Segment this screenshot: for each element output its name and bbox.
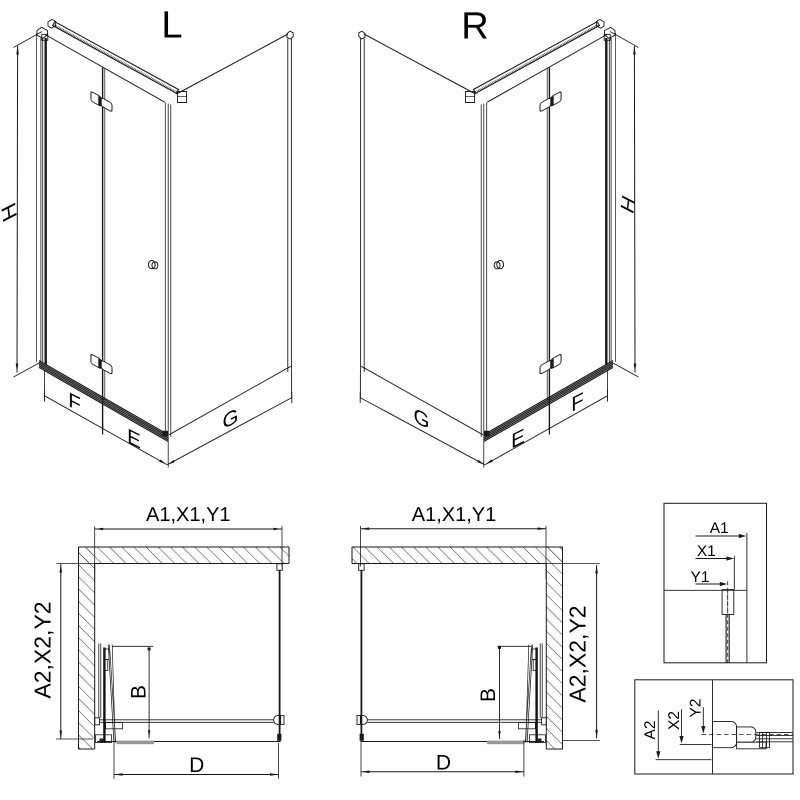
- svg-text:D: D: [189, 754, 204, 777]
- svg-text:A2,X2,Y2: A2,X2,Y2: [30, 601, 56, 698]
- svg-text:D: D: [436, 752, 451, 775]
- svg-text:A2,X2,Y2: A2,X2,Y2: [565, 605, 591, 702]
- svg-text:L: L: [161, 5, 182, 47]
- svg-text:A1,X1,Y1: A1,X1,Y1: [412, 504, 497, 526]
- svg-text:F: F: [571, 388, 584, 417]
- svg-text:A1: A1: [710, 520, 729, 537]
- svg-text:F: F: [68, 388, 81, 417]
- svg-text:A2: A2: [642, 721, 659, 740]
- svg-text:Y1: Y1: [691, 569, 710, 586]
- svg-text:X1: X1: [697, 543, 716, 560]
- svg-text:E: E: [511, 424, 525, 454]
- svg-text:A1,X1,Y1: A1,X1,Y1: [146, 504, 231, 526]
- svg-text:R: R: [461, 6, 488, 48]
- svg-text:B: B: [477, 688, 500, 702]
- svg-text:G: G: [223, 404, 239, 435]
- svg-text:X2: X2: [666, 711, 683, 730]
- svg-text:E: E: [127, 424, 141, 454]
- svg-text:B: B: [128, 685, 151, 699]
- svg-text:G: G: [414, 404, 430, 435]
- svg-text:Y2: Y2: [688, 699, 705, 718]
- svg-text:H: H: [0, 199, 21, 226]
